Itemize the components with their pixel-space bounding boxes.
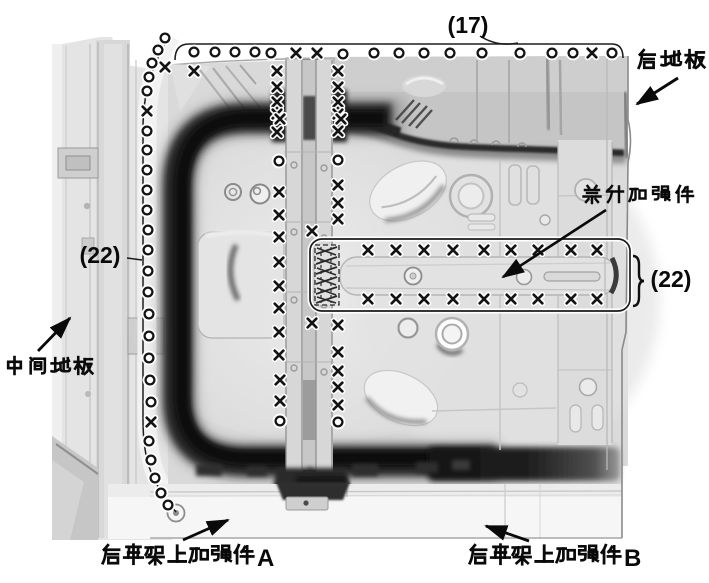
svg-text:B: B (624, 545, 641, 572)
svg-text:(22): (22) (651, 266, 692, 292)
svg-text:A: A (257, 545, 274, 572)
svg-text:(17): (17) (448, 12, 489, 38)
svg-text:(22): (22) (80, 242, 121, 268)
